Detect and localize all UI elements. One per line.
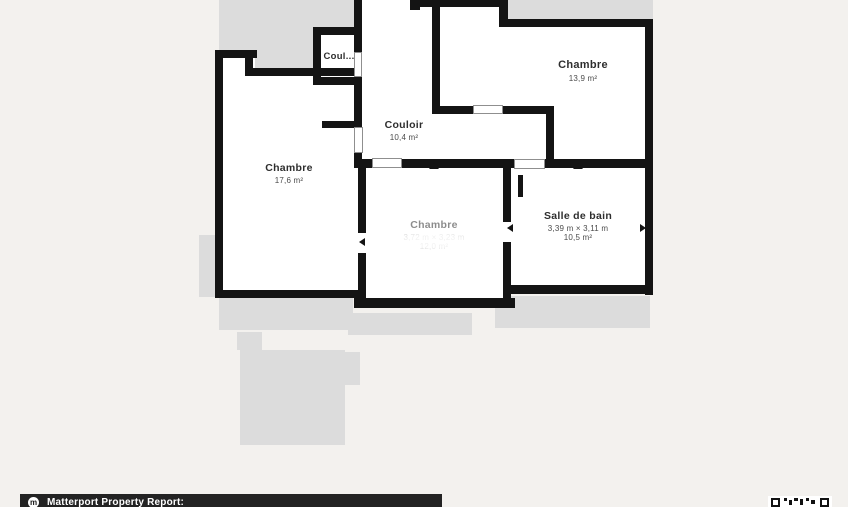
dimension-arrow-up-icon [573, 163, 583, 169]
qr-module [794, 498, 798, 501]
building-backdrop [219, 0, 354, 30]
building-backdrop [237, 332, 262, 350]
building-backdrop [348, 313, 472, 335]
building-backdrop [345, 352, 360, 385]
room-name: Salle de bain [544, 210, 612, 222]
qr-finder [820, 498, 829, 507]
dimension-arrow-down-icon [573, 287, 583, 293]
room-fill-chambre-top-right [503, 21, 651, 166]
building-backdrop [240, 350, 345, 445]
footer-label: Matterport Property Report: [47, 497, 184, 507]
dimension-arrow-up-icon [429, 163, 439, 169]
footer-bar: m Matterport Property Report: [20, 494, 442, 507]
qr-module [789, 500, 792, 505]
wall-segment [215, 50, 223, 298]
building-backdrop [508, 0, 653, 21]
building-backdrop [219, 296, 353, 330]
room-label-chambre-left: Chambre 17,6 m² [265, 162, 313, 185]
room-area: 12,0 m² [403, 242, 464, 251]
qr-module [806, 498, 809, 501]
room-name: Couloir [385, 119, 424, 131]
wall-segment [546, 106, 554, 167]
dimension-arrow-down-icon [429, 300, 439, 306]
door-chambre-middle [372, 158, 402, 168]
dimension-arrow-right-icon [640, 224, 646, 232]
room-name: Coul... [323, 51, 354, 62]
room-label-chambre-top-right: Chambre 13,9 m² [558, 59, 608, 83]
room-label-salle-de-bain: Salle de bain 3,39 m × 3,11 m 10,5 m² [544, 210, 612, 242]
qr-code [768, 496, 832, 507]
dimension-arrow-right-icon [505, 242, 511, 250]
room-area: 13,9 m² [558, 74, 608, 83]
wall-segment [245, 68, 355, 76]
qr-module [811, 500, 815, 504]
dimension-arrow-left-icon [359, 238, 365, 246]
wall-segment [645, 19, 653, 295]
dimension-arrow-left-icon [507, 224, 513, 232]
room-label-couloir-small: Coul... [323, 51, 354, 62]
room-dimensions: 3,39 m × 3,11 m [544, 224, 612, 233]
wall-segment [518, 175, 523, 197]
matterport-logo-icon: m [28, 497, 39, 507]
wall-segment [215, 290, 366, 298]
qr-finder [771, 498, 780, 507]
room-name: Chambre [558, 59, 608, 71]
room-area: 17,6 m² [265, 176, 313, 185]
room-area: 10,4 m² [385, 133, 424, 142]
room-name: Chambre [265, 162, 313, 174]
wall-segment [322, 121, 358, 128]
room-label-chambre-middle: Chambre 3,72 m × 3,23 m 12,0 m² [403, 219, 464, 251]
window-chambre-top-right [473, 105, 503, 114]
room-name: Chambre [403, 219, 464, 231]
matterport-report-page: Coul... Chambre 13,9 m² Couloir 10,4 m² … [0, 0, 848, 507]
room-label-couloir: Couloir 10,4 m² [385, 119, 424, 142]
qr-module [800, 499, 803, 505]
door-chambre-left [354, 127, 363, 153]
window-couloir-small [354, 52, 362, 77]
wall-segment [415, 0, 508, 7]
qr-module [784, 498, 787, 501]
wall-segment [499, 19, 653, 27]
room-dimensions: 3,72 m × 3,23 m [403, 233, 464, 242]
wall-segment [432, 3, 440, 114]
room-area: 10,5 m² [544, 233, 612, 242]
door-salle-de-bain [514, 159, 545, 169]
building-backdrop [495, 296, 650, 328]
